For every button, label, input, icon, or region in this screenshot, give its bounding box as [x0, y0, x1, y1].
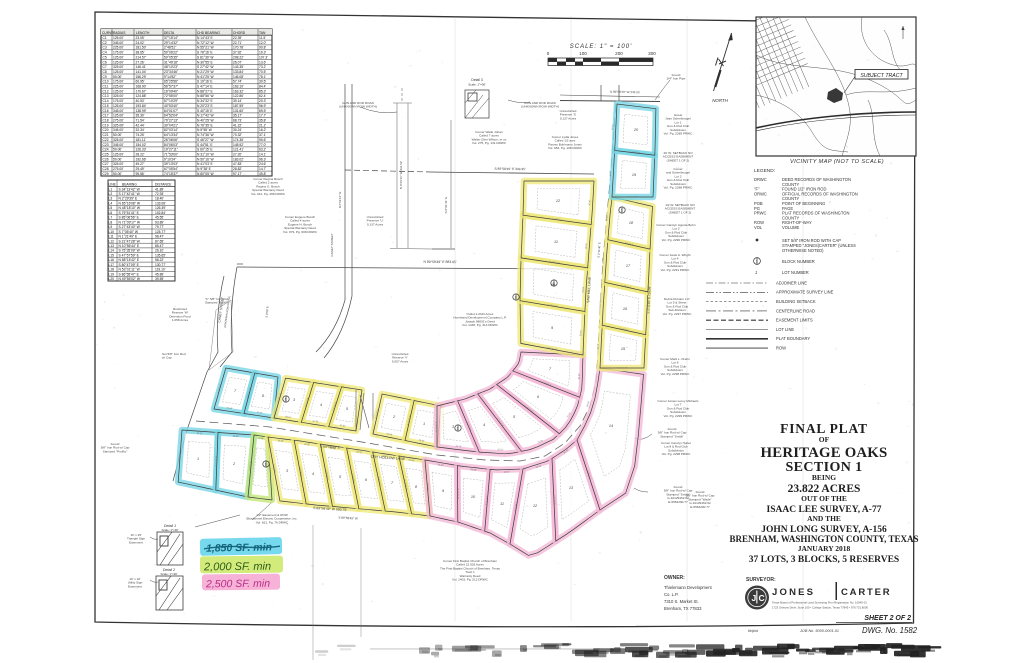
svg-text:LEGEND:: LEGEND:: [754, 168, 775, 174]
svg-text:26°06'06": 26°06'06": [164, 138, 179, 142]
svg-text:N 20°23' E: N 20°23' E: [197, 104, 213, 108]
svg-text:L11: L11: [109, 235, 114, 239]
svg-text:SCALE: 1" = 100': SCALE: 1" = 100': [570, 44, 632, 50]
svg-text:C: C: [759, 593, 765, 603]
svg-text:N 89°58'49" E 883.05': N 89°58'49" E 883.05': [423, 260, 456, 264]
svg-text:tlt/plot: tlt/plot: [748, 629, 759, 633]
svg-text:EASEMENT LIMITS: EASEMENT LIMITS: [776, 318, 813, 323]
svg-text:L7: L7: [109, 216, 113, 220]
svg-text:156.29': 156.29': [136, 75, 147, 79]
svg-text:14.1': 14.1': [259, 153, 266, 157]
svg-text:125.77': 125.77': [155, 230, 166, 234]
svg-text:130.77': 130.77': [155, 263, 166, 267]
svg-text:72°55'00": 72°55'00": [164, 94, 179, 98]
svg-text:1: 1: [553, 281, 555, 285]
svg-text:ROW: ROW: [776, 346, 786, 351]
svg-text:S 21°47'28" W: S 21°47'28" W: [119, 239, 141, 243]
svg-text:90.6': 90.6': [259, 138, 266, 142]
svg-text:N 88°15'42" E: N 88°15'42" E: [119, 258, 140, 262]
svg-text:181.11': 181.11': [136, 138, 147, 142]
svg-text:13.6': 13.6': [259, 60, 266, 64]
svg-text:175.00': 175.00': [113, 80, 124, 84]
svg-text:Vol. 1436, Pg. 314 DRWC: Vol. 1436, Pg. 314 DRWC: [462, 323, 498, 327]
svg-text:Vol. Pg. 2290 PRWC: Vol. Pg. 2290 PRWC: [662, 238, 691, 242]
svg-text:CENTERLINE ROAD: CENTERLINE ROAD: [776, 308, 815, 313]
svg-text:0: 0: [547, 51, 550, 56]
svg-text:Easement: Easement: [129, 540, 143, 544]
svg-text:175.00': 175.00': [113, 99, 124, 103]
svg-text:39°13'03": 39°13'03": [164, 162, 179, 166]
svg-text:125.00': 125.00': [113, 89, 124, 93]
svg-text:N 2°29'39" E: N 2°29'39" E: [119, 197, 138, 201]
svg-text:C7: C7: [103, 65, 107, 69]
svg-text:LOT NUMBER: LOT NUMBER: [782, 270, 809, 275]
svg-text:125.00': 125.00': [113, 36, 124, 40]
svg-text:45.89': 45.89': [155, 272, 164, 276]
svg-text:35.30': 35.30': [136, 114, 145, 118]
svg-text:FINAL PLAT: FINAL PLAT: [780, 421, 868, 436]
svg-text:121.41': 121.41': [233, 148, 244, 152]
svg-text:30.24': 30.24': [233, 128, 242, 132]
svg-text:N 17°42' W: N 17°42' W: [197, 114, 214, 118]
svg-text:11: 11: [554, 240, 558, 244]
svg-text:N 30°55' E: N 30°55' E: [197, 60, 213, 64]
svg-text:C29: C29: [103, 172, 109, 176]
svg-text:C1: C1: [103, 36, 107, 40]
svg-text:L1: L1: [109, 187, 113, 191]
svg-text:48°10'23": 48°10'23": [164, 65, 179, 69]
svg-text:VOLUME: VOLUME: [782, 225, 800, 230]
svg-text:PRWC: PRWC: [754, 211, 766, 216]
svg-text:N 89°58'49" W 349.35': N 89°58'49" W 349.35': [610, 90, 641, 95]
svg-text:S 47°57'59" E: S 47°57'59" E: [119, 253, 140, 257]
svg-text:200: 200: [615, 51, 623, 56]
svg-text:154.02': 154.02': [136, 143, 147, 147]
svg-text:C3: C3: [103, 46, 107, 50]
svg-text:64°13'34": 64°13'34": [164, 133, 179, 137]
svg-text:CHD BEARING: CHD BEARING: [197, 31, 220, 35]
svg-text:S 46°27' W: S 46°27' W: [197, 138, 214, 142]
svg-text:49.27': 49.27': [136, 162, 145, 166]
svg-text:OUT OF THE: OUT OF THE: [801, 494, 847, 503]
svg-text:85.47': 85.47': [155, 244, 164, 248]
svg-text:1: 1: [265, 462, 267, 466]
svg-text:Scale: 1"=30': Scale: 1"=30': [161, 572, 178, 576]
svg-text:50°06'22": 50°06'22": [164, 51, 179, 55]
svg-text:JOB No. 5000-0001-01: JOB No. 5000-0001-01: [799, 629, 839, 633]
svg-text:50.00': 50.00': [113, 75, 122, 79]
svg-text:S 44°51' E: S 44°51' E: [197, 143, 213, 147]
svg-text:168.90': 168.90': [136, 85, 147, 89]
svg-text:5.057 Acres: 5.057 Acres: [392, 359, 409, 363]
svg-text:VICINITY MAP (NOT TO SCALE): VICINITY MAP (NOT TO SCALE): [790, 159, 884, 165]
svg-text:S 86°55'47" E: S 86°55'47" E: [119, 272, 140, 276]
svg-text:174.36': 174.36': [233, 138, 244, 142]
svg-text:125.00': 125.00': [113, 114, 124, 118]
svg-text:345.00': 345.00': [113, 41, 124, 45]
svg-text:97.17': 97.17': [233, 172, 242, 176]
svg-text:N 23°37' E: N 23°37' E: [436, 421, 438, 432]
svg-text:345.00': 345.00': [113, 128, 124, 132]
svg-text:C23: C23: [103, 143, 109, 147]
svg-text:VOL: VOL: [754, 225, 763, 230]
svg-text:37°15'14": 37°15'14": [164, 36, 179, 40]
svg-text:(UNKNOWN ROW WIDTH): (UNKNOWN ROW WIDTH): [521, 105, 559, 109]
svg-text:133.84': 133.84': [233, 70, 244, 74]
svg-text:85.3': 85.3': [259, 89, 266, 93]
svg-text:72.93': 72.93': [155, 192, 164, 196]
svg-text:37.92': 37.92': [233, 51, 242, 55]
svg-text:Vol. 979, Pg. 608 DRWC: Vol. 979, Pg. 608 DRWC: [283, 230, 318, 234]
svg-text:225.00': 225.00': [113, 46, 124, 50]
svg-text:275.00': 275.00': [113, 167, 124, 171]
svg-text:175.00': 175.00': [113, 51, 124, 55]
svg-text:LINE: LINE: [109, 182, 117, 186]
svg-text:Scale: 1"=30': Scale: 1"=30': [468, 83, 486, 87]
svg-text:N 21°29' W: N 21°29' W: [197, 70, 214, 74]
svg-text:L2: L2: [109, 192, 113, 196]
svg-text:122.86': 122.86': [233, 94, 244, 98]
svg-text:N 5°55' W: N 5°55' W: [197, 128, 213, 132]
svg-text:DELTA: DELTA: [164, 31, 175, 35]
svg-text:C10: C10: [103, 80, 109, 84]
svg-text:TAN: TAN: [259, 31, 266, 35]
svg-text:Texas Board of Professional La: Texas Board of Professional Land Surveyi…: [772, 601, 867, 605]
svg-text:L18: L18: [109, 268, 115, 272]
svg-text:S 27°43'40" W: S 27°43'40" W: [119, 225, 141, 229]
svg-text:L16: L16: [109, 258, 115, 262]
svg-text:N 76°35' E: N 76°35' E: [197, 123, 213, 127]
svg-text:S 27°41' E: S 27°41' E: [617, 367, 627, 369]
svg-text:CANEY STREET: CANEY STREET: [330, 233, 334, 256]
svg-text:58.22': 58.22': [155, 258, 164, 262]
svg-text:41.22': 41.22': [233, 123, 242, 127]
svg-text:345.00': 345.00': [113, 109, 124, 113]
svg-text:2: 2: [515, 295, 517, 299]
svg-text:45.40': 45.40': [589, 199, 591, 206]
svg-text:12.0': 12.0': [259, 41, 266, 45]
svg-text:Detail 3: Detail 3: [471, 78, 483, 82]
svg-text:N 9°38' E: N 9°38' E: [197, 167, 212, 171]
svg-text:16°09'40": 16°09'40": [164, 89, 179, 93]
svg-text:N 80°05' W: N 80°05' W: [197, 172, 214, 176]
svg-text:50°05'35": 50°05'35": [164, 55, 179, 59]
svg-text:11: 11: [500, 502, 504, 506]
svg-text:L13: L13: [109, 244, 115, 248]
svg-text:C13: C13: [103, 94, 109, 98]
svg-text:57°10'29": 57°10'29": [164, 99, 179, 103]
svg-text:23.05': 23.05': [136, 36, 145, 40]
svg-text:325.00': 325.00': [113, 162, 124, 166]
svg-text:163.32': 163.32': [233, 89, 244, 93]
svg-text:C9: C9: [103, 75, 107, 79]
svg-text:S 27°42' W: S 27°42' W: [197, 65, 214, 69]
svg-text:21.2': 21.2': [259, 123, 266, 127]
svg-text:CARTER: CARTER: [841, 587, 891, 598]
svg-text:Vol. Pg. 2298 PRWC: Vol. Pg. 2298 PRWC: [662, 452, 691, 456]
svg-text:SUBJECT TRACT: SUBJECT TRACT: [860, 73, 903, 79]
svg-text:N 0°01'11" W 431.62': N 0°01'11" W 431.62': [399, 160, 403, 189]
svg-text:24.02': 24.02': [136, 41, 145, 45]
svg-text:C27: C27: [103, 162, 109, 166]
svg-text:4: 4: [312, 472, 314, 476]
svg-text:PLAT BOUNDARY: PLAT BOUNDARY: [776, 336, 810, 341]
svg-text:1: 1: [423, 422, 425, 426]
svg-text:N 10°56'44" E: N 10°56'44" E: [119, 244, 140, 248]
svg-text:L20: L20: [109, 277, 115, 281]
svg-text:1.058 Acres: 1.058 Acres: [172, 318, 189, 322]
svg-text:145.92': 145.92': [233, 143, 244, 147]
svg-text:192.66': 192.66': [136, 157, 147, 161]
svg-text:69.5': 69.5': [259, 109, 266, 113]
svg-text:S 75°35'09" W: S 75°35'09" W: [119, 249, 141, 253]
svg-text:1: 1: [285, 397, 287, 401]
svg-text:24.6': 24.6': [259, 162, 266, 166]
svg-text:125.00': 125.00': [113, 60, 124, 64]
svg-text:N 65°16'08" W: N 65°16'08" W: [119, 202, 141, 206]
svg-text:2°48'51": 2°48'51": [164, 46, 177, 50]
svg-text:N 31°10' W: N 31°10' W: [197, 153, 214, 157]
svg-text:141.04': 141.04': [136, 70, 147, 74]
svg-text:J: J: [752, 593, 757, 603]
svg-text:N 49°55'02" W: N 49°55'02" W: [119, 277, 141, 281]
svg-text:DRWC: DRWC: [754, 177, 767, 182]
svg-text:E-5564290.77: E-5564290.77: [690, 505, 710, 509]
svg-text:BLOCK NUMBER: BLOCK NUMBER: [782, 259, 815, 264]
svg-text:Vol. Pg. 2298 PRWC: Vol. Pg. 2298 PRWC: [661, 372, 690, 376]
svg-text:4: 4: [320, 403, 322, 407]
svg-text:35.8': 35.8': [259, 119, 266, 123]
svg-text:1: 1: [197, 457, 199, 461]
svg-text:82.52': 82.52': [497, 449, 504, 451]
svg-text:28.82': 28.82': [233, 167, 242, 171]
svg-text:C18: C18: [103, 119, 109, 123]
svg-text:143.35': 143.35': [233, 65, 244, 69]
svg-text:37 LOTS, 3 BLOCKS, 5 RESERVES: 37 LOTS, 3 BLOCKS, 5 RESERVES: [749, 555, 899, 565]
svg-text:20: 20: [633, 128, 639, 132]
svg-text:C21: C21: [103, 133, 109, 137]
svg-text:62.4': 62.4': [259, 94, 266, 98]
svg-text:50.00': 50.00': [113, 133, 122, 137]
svg-text:71.38': 71.38': [597, 343, 599, 350]
svg-text:C4: C4: [103, 51, 107, 55]
svg-text:C6: C6: [103, 60, 107, 64]
svg-text:S 81°39' W: S 81°39' W: [197, 55, 214, 59]
svg-text:83.32': 83.32': [579, 373, 581, 380]
svg-text:325.00': 325.00': [113, 138, 124, 142]
svg-text:w/ Cap: w/ Cap: [162, 356, 172, 360]
svg-text:107.3': 107.3': [259, 55, 268, 59]
svg-text:C17: C17: [103, 114, 109, 118]
svg-text:S 60°15' E: S 60°15' E: [197, 148, 213, 152]
svg-text:BUILDING SETBACK: BUILDING SETBACK: [776, 299, 816, 304]
svg-text:JONES: JONES: [772, 587, 815, 598]
svg-text:39.14': 39.14': [233, 99, 242, 103]
svg-text:28.22': 28.22': [136, 153, 145, 157]
svg-text:C25: C25: [103, 153, 109, 157]
svg-text:100: 100: [579, 51, 587, 56]
svg-text:S 78°16' E: S 78°16' E: [197, 51, 213, 55]
svg-text:C5: C5: [103, 55, 107, 59]
svg-text:74°15'37": 74°15'37": [164, 172, 179, 176]
svg-text:Vol. Pg. 2289 PRWC: Vol. Pg. 2289 PRWC: [664, 132, 693, 136]
svg-text:26.07': 26.07': [233, 60, 242, 64]
svg-text:Easement: Easement: [128, 584, 142, 588]
svg-text:RADIUS: RADIUS: [113, 31, 126, 35]
svg-text:Vol. Pg. 2288 PRWC: Vol. Pg. 2288 PRWC: [664, 186, 693, 190]
svg-text:3/4" Iron Pipe: 3/4" Iron Pipe: [667, 77, 686, 81]
svg-text:Thielemann Development: Thielemann Development: [664, 585, 713, 590]
svg-text:S 0°01'11" E: S 0°01'11" E: [444, 197, 448, 214]
svg-text:N 34°32' E: N 34°32' E: [197, 99, 213, 103]
svg-text:170.78': 170.78': [233, 46, 244, 50]
svg-text:11.5': 11.5': [259, 36, 266, 40]
svg-text:1: 1: [755, 270, 757, 275]
svg-text:208.22': 208.22': [233, 55, 244, 59]
svg-text:14: 14: [609, 424, 613, 428]
svg-text:225.00': 225.00': [113, 85, 124, 89]
svg-text:2,000 SF. min: 2,000 SF. min: [203, 561, 271, 574]
svg-text:30.5': 30.5': [259, 80, 266, 84]
svg-text:325.00': 325.00': [113, 94, 124, 98]
svg-text:60.95': 60.95': [136, 80, 145, 84]
svg-text:C16: C16: [103, 109, 109, 113]
svg-text:L8: L8: [109, 220, 113, 224]
svg-text:HERITAGE OAKS: HERITAGE OAKS: [761, 445, 888, 461]
svg-text:Vol. Pg. 2299 PRWC: Vol. Pg. 2299 PRWC: [664, 414, 693, 418]
svg-text:26.10': 26.10': [155, 249, 164, 253]
svg-text:L17: L17: [109, 263, 115, 267]
svg-text:47.83': 47.83': [233, 162, 242, 166]
svg-text:ORWC: ORWC: [754, 191, 767, 196]
svg-text:L4: L4: [109, 202, 113, 206]
svg-text:170.67': 170.67': [136, 89, 147, 93]
svg-text:JANUARY 2018: JANUARY 2018: [798, 544, 851, 553]
svg-text:56°57'37": 56°57'37": [164, 85, 179, 89]
svg-text:31°49'18": 31°49'18": [164, 60, 179, 64]
svg-text:1: 1: [756, 260, 758, 264]
svg-text:APPROXIMATE SURVEY LINE: APPROXIMATE SURVEY LINE: [776, 290, 834, 295]
svg-text:(UNKNOWN ROW WIDTH): (UNKNOWN ROW WIDTH): [339, 105, 377, 109]
svg-text:70.5': 70.5': [259, 70, 266, 74]
svg-text:N 88°56' W: N 88°56' W: [197, 94, 214, 98]
svg-text:14.7': 14.7': [259, 167, 266, 171]
svg-text:Vol. 953, Pg. 108 DRWC: Vol. 953, Pg. 108 DRWC: [548, 146, 583, 150]
svg-text:2: 2: [457, 426, 459, 430]
svg-text:BEING: BEING: [812, 473, 836, 482]
svg-text:135.65': 135.65': [155, 253, 166, 257]
svg-text:C2: C2: [103, 41, 107, 45]
svg-text:125.00': 125.00': [113, 70, 124, 74]
svg-text:Vol. 941, Pg. 288 DRWC: Vol. 941, Pg. 288 DRWC: [251, 192, 286, 196]
svg-text:19°27'11": 19°27'11": [164, 148, 179, 152]
svg-text:N 40°25' W: N 40°25' W: [197, 119, 214, 123]
svg-text:C19: C19: [103, 123, 109, 127]
svg-text:124.88': 124.88': [136, 94, 147, 98]
svg-text:345.00': 345.00': [113, 143, 124, 147]
svg-text:125.00': 125.00': [113, 55, 124, 59]
svg-text:N 24°41' W: N 24°41' W: [216, 456, 218, 467]
svg-text:S 80°47'09" E: S 80°47'09" E: [119, 263, 140, 267]
svg-text:70.32': 70.32': [233, 133, 242, 137]
svg-text:C22: C22: [103, 138, 109, 142]
svg-text:32.34': 32.34': [136, 128, 145, 132]
svg-text:98.47': 98.47': [155, 235, 164, 239]
svg-text:131.60': 131.60': [233, 109, 244, 113]
svg-text:C14: C14: [103, 99, 109, 103]
svg-text:BRENHAM, WASHINGTON COUNTY, TE: BRENHAM, WASHINGTON COUNTY, TEXAS: [730, 534, 919, 544]
svg-text:66.52': 66.52': [504, 471, 511, 473]
svg-text:L10: L10: [109, 230, 115, 234]
svg-text:L6: L6: [109, 211, 113, 215]
svg-text:C11: C11: [103, 85, 109, 89]
svg-text:41.89': 41.89': [155, 187, 164, 191]
svg-text:193.84': 193.84': [136, 104, 147, 108]
svg-text:ADJOINER LINE: ADJOINER LINE: [776, 280, 807, 285]
svg-text:38.65': 38.65': [136, 51, 145, 55]
svg-text:N 50°16' W: N 50°16' W: [197, 157, 214, 161]
svg-text:96.3': 96.3': [259, 157, 266, 161]
svg-text:37.1': 37.1': [259, 133, 266, 137]
svg-text:181.50': 181.50': [136, 46, 147, 50]
svg-text:67°05'54": 67°05'54": [164, 167, 179, 171]
svg-text:C24: C24: [103, 148, 109, 152]
svg-text:N 55°21' W: N 55°21' W: [197, 46, 214, 50]
svg-text:126.39': 126.39': [155, 206, 166, 210]
svg-text:23°34'46": 23°34'46": [164, 70, 179, 74]
svg-text:C26: C26: [103, 157, 109, 161]
svg-text:30°04'21": 30°04'21": [164, 123, 179, 127]
svg-text:NORTH: NORTH: [712, 98, 728, 103]
svg-text:146.08': 146.08': [233, 75, 244, 79]
svg-text:N 1°21'49" E: N 1°21'49" E: [119, 235, 138, 239]
svg-text:325.00': 325.00': [113, 65, 124, 69]
svg-text:40°53'40": 40°53'40": [164, 104, 179, 108]
svg-text:0.137 Acres: 0.137 Acres: [367, 222, 384, 226]
svg-text:79°27'13": 79°27'13": [164, 119, 179, 123]
svg-text:1: 1: [621, 208, 623, 212]
svg-text:187.59': 187.59': [233, 104, 244, 108]
svg-text:63.2': 63.2': [259, 148, 266, 152]
svg-text:L5: L5: [109, 206, 113, 210]
svg-text:N 13°14' W: N 13°14' W: [457, 489, 459, 500]
svg-text:18.40': 18.40': [155, 197, 164, 201]
svg-text:275.00': 275.00': [113, 119, 124, 123]
svg-text:Co. L.P.: Co. L.P.: [664, 592, 679, 597]
svg-text:42.44': 42.44': [136, 123, 145, 127]
svg-text:138.99': 138.99': [136, 109, 147, 113]
svg-text:OF: OF: [819, 435, 830, 444]
svg-text:L12: L12: [109, 239, 115, 243]
svg-text:N 0°01'11" W: N 0°01'11" W: [338, 191, 342, 208]
svg-text:49.8': 49.8': [259, 172, 266, 176]
svg-text:96.9': 96.9': [259, 104, 266, 108]
svg-text:119.10': 119.10': [155, 268, 166, 272]
svg-text:Vol. Pg. 2291 PRWC: Vol. Pg. 2291 PRWC: [661, 268, 690, 272]
svg-text:16.2': 16.2': [259, 128, 266, 132]
svg-text:78.1': 78.1': [259, 75, 266, 79]
svg-text:AND THE: AND THE: [807, 514, 841, 523]
svg-text:S 19°16' E: S 19°16' E: [197, 80, 213, 84]
svg-text:OTHERWISE NOTED): OTHERWISE NOTED): [782, 248, 824, 253]
svg-text:102.84': 102.84': [155, 211, 166, 215]
svg-text:146.41': 146.41': [136, 65, 147, 69]
svg-text:C20: C20: [103, 128, 109, 132]
svg-text:L9: L9: [109, 225, 113, 229]
svg-text:CHORD: CHORD: [233, 31, 246, 35]
svg-text:N 71°09'17" W: N 71°09'17" W: [119, 220, 141, 224]
svg-text:E-5564290.77: E-5564290.77: [668, 500, 688, 504]
